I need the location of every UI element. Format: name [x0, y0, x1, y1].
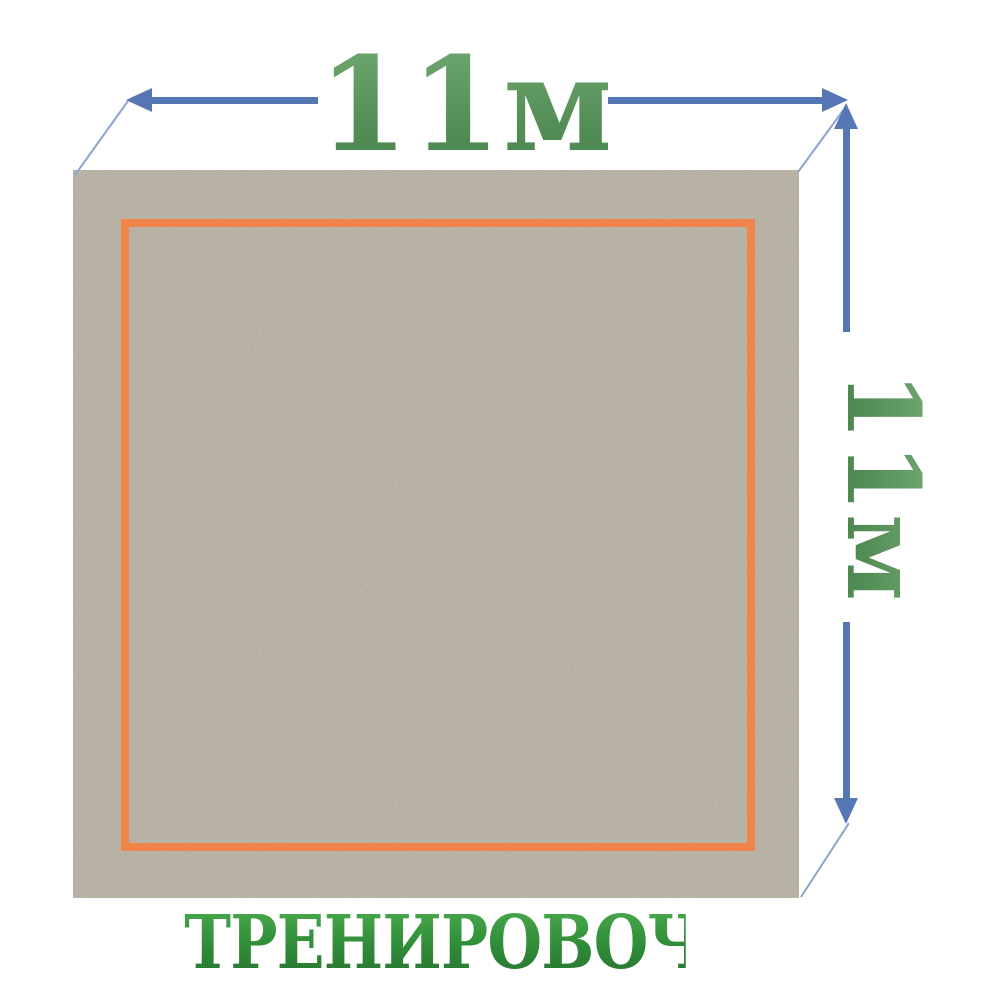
width-dimension-line-left-segment: [150, 97, 318, 104]
product-title: ТРЕНИРОВОЧНЫЙ: [184, 906, 686, 980]
height-arrowhead-down-icon: [834, 798, 858, 824]
width-dimension-line-right-segment: [608, 97, 824, 104]
width-arrowhead-left-icon: [126, 88, 152, 112]
height-dimension-line-bottom-segment: [843, 622, 850, 800]
height-arrowhead-up-icon: [834, 103, 858, 129]
mat-boundary-line: [121, 219, 755, 851]
width-extension-line-left: [74, 100, 129, 175]
training-mat: [73, 170, 799, 898]
height-dimension-line-top-segment: [843, 129, 850, 332]
width-label: 11м: [318, 40, 608, 170]
height-extension-line-bottom: [800, 823, 850, 898]
height-label: 11м: [833, 362, 933, 612]
diagram-canvas: 11м 11м ТРЕНИРОВОЧНЫЙ: [0, 0, 1000, 1000]
